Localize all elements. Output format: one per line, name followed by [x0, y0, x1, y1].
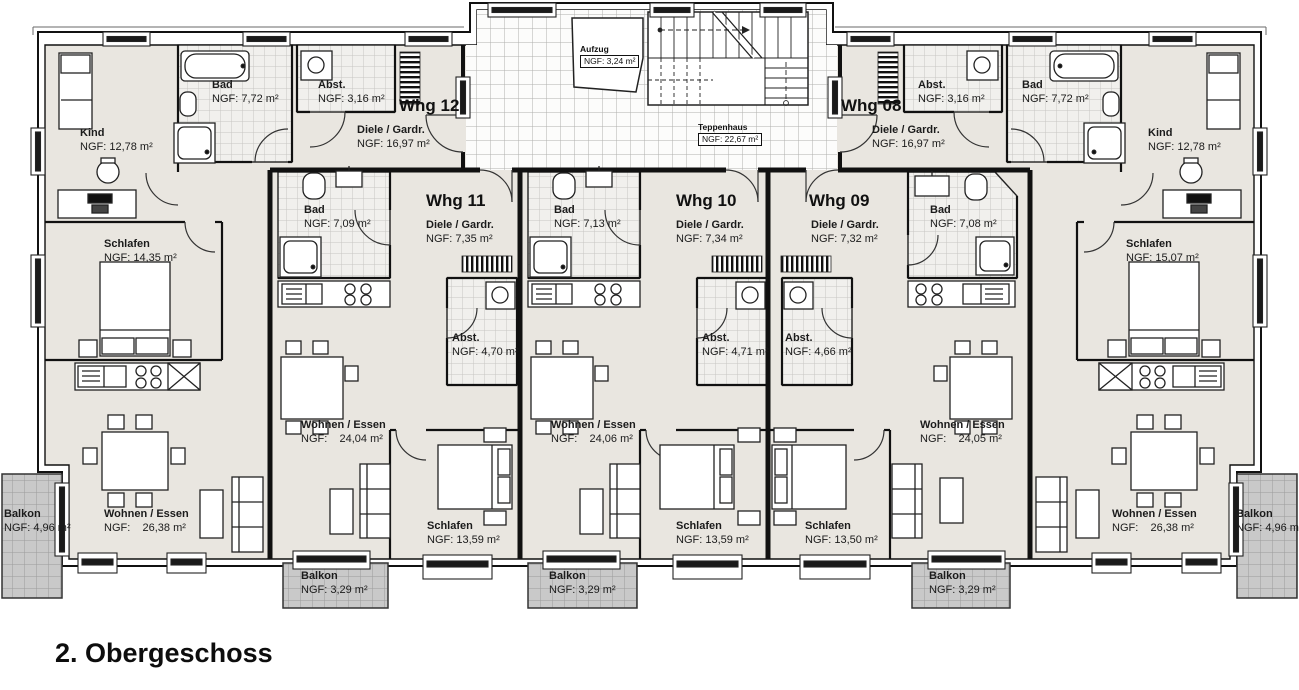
room-label-bad-whg11: BadNGF: 7,09 m² [304, 204, 371, 231]
pot-icon [97, 161, 119, 183]
cistern-icon [586, 171, 612, 187]
room-label-diele-whg12: Diele / Gardr.NGF: 16,97 m² [357, 124, 430, 151]
washing-machine-icon [486, 282, 515, 309]
room-label-balkon-whg08: BalkonNGF: 4,96 m² [1236, 508, 1299, 535]
room-label-balkon-whg10: BalkonNGF: 3,29 m² [549, 570, 616, 597]
room-label-abst-whg08: Abst.NGF: 3,16 m² [918, 79, 985, 106]
nightstand-icon [738, 428, 760, 442]
dining-table-icon [950, 357, 1012, 419]
room-label-bad-whg09: BadNGF: 7,08 m² [930, 204, 997, 231]
washbasin-icon [303, 173, 325, 199]
chair-icon [536, 341, 551, 354]
room-label-diele-whg09: Diele / Gardr.NGF: 7,32 m² [811, 219, 879, 246]
sofa-icon [892, 464, 922, 538]
dining-table-icon [531, 357, 593, 419]
apartment-title-whg09: Whg 09 [809, 191, 869, 211]
nightstand-icon [774, 428, 796, 442]
toilet-icon [1103, 92, 1119, 116]
cistern-icon [915, 176, 949, 196]
coffee-table-icon [200, 490, 223, 538]
room-label-kind-whg12: KindNGF: 12,78 m² [80, 127, 153, 154]
room-label-wohnen-whg10: Wohnen / EssenNGF: 24,06 m² [551, 419, 636, 446]
nightstand-icon [173, 340, 191, 357]
room-label-kind-whg08: KindNGF: 12,78 m² [1148, 127, 1221, 154]
washbasin-icon [965, 174, 987, 200]
nightstand-icon [79, 340, 97, 357]
sofa-icon [1036, 477, 1067, 552]
room-label-schlafen-whg11: SchlafenNGF: 13,59 m² [427, 520, 500, 547]
sofa-icon [610, 464, 640, 538]
dining-table-icon [1131, 432, 1197, 490]
washing-machine-icon [967, 51, 998, 80]
room-label-wohnen-whg08: Wohnen / EssenNGF: 26,38 m² [1112, 508, 1197, 535]
room-label-abst-whg09: Abst.NGF: 4,66 m² [785, 332, 852, 359]
sofa-icon [232, 477, 263, 552]
room-label-abst-whg11: Abst.NGF: 4,70 m² [452, 332, 519, 359]
room-label-schlafen-whg10: SchlafenNGF: 13,59 m² [676, 520, 749, 547]
room-label-wohnen-whg11: Wohnen / EssenNGF: 24,04 m² [301, 419, 386, 446]
room-label-schlafen-whg12: SchlafenNGF: 14,35 m² [104, 238, 177, 265]
room-label-abst-whg10: Abst.NGF: 4,71 m² [702, 332, 769, 359]
chair-icon [108, 415, 124, 429]
room-label-balkon-whg12: BalkonNGF: 4,96 m² [4, 508, 71, 535]
toilet-icon [180, 92, 196, 116]
chair-icon [1137, 415, 1153, 429]
chair-icon [955, 341, 970, 354]
coffee-table-icon [330, 489, 353, 534]
room-label-schlafen-whg09: SchlafenNGF: 13,50 m² [805, 520, 878, 547]
dining-table-icon [281, 357, 343, 419]
stairs-icon [648, 12, 808, 105]
elevator-label: AufzugNGF: 3,24 m² [580, 44, 639, 68]
washing-machine-icon [301, 51, 332, 80]
pot-icon [1180, 161, 1202, 183]
apartment-title-whg10: Whg 10 [676, 191, 736, 211]
room-label-bad-whg08: BadNGF: 7,72 m² [1022, 79, 1089, 106]
apartment-title-whg11: Whg 11 [426, 191, 486, 211]
washing-machine-icon [784, 282, 813, 309]
sofa-icon [360, 464, 390, 538]
coffee-table-icon [1076, 490, 1099, 538]
room-label-wohnen-whg12: Wohnen / EssenNGF: 26,38 m² [104, 508, 189, 535]
washing-machine-icon [736, 282, 765, 309]
coffee-table-icon [940, 478, 963, 523]
dining-table-icon [102, 432, 168, 490]
nightstand-icon [1108, 340, 1126, 357]
apartment-title-whg08: Whg 08 [841, 96, 901, 116]
room-label-wohnen-whg09: Wohnen / EssenNGF: 24,05 m² [920, 419, 1005, 446]
coffee-table-icon [580, 489, 603, 534]
cistern-icon [336, 171, 362, 187]
room-label-bad-whg12: BadNGF: 7,72 m² [212, 79, 279, 106]
nightstand-icon [774, 511, 796, 525]
room-label-abst-whg12: Abst.NGF: 3,16 m² [318, 79, 385, 106]
chair-icon [286, 341, 301, 354]
stairwell-label: TeppenhausNGF: 22,67 m² [698, 122, 762, 146]
room-label-diele-whg11: Diele / Gardr.NGF: 7,35 m² [426, 219, 494, 246]
room-label-balkon-whg11: BalkonNGF: 3,29 m² [301, 570, 368, 597]
room-label-balkon-whg09: BalkonNGF: 3,29 m² [929, 570, 996, 597]
room-label-bad-whg10: BadNGF: 7,13 m² [554, 204, 621, 231]
floor-title: 2. Obergeschoss [55, 638, 273, 669]
room-label-schlafen-whg08: SchlafenNGF: 15,07 m² [1126, 238, 1199, 265]
washbasin-icon [553, 173, 575, 199]
nightstand-icon [1202, 340, 1220, 357]
room-label-diele-whg08: Diele / Gardr.NGF: 16,97 m² [872, 124, 945, 151]
apartment-title-whg12: Whg 12 [399, 96, 459, 116]
nightstand-icon [484, 428, 506, 442]
floorplan-page: Whg 12 Whg 11 Whg 10 Whg 09 Whg 08 KindN… [0, 0, 1299, 690]
room-label-diele-whg10: Diele / Gardr.NGF: 7,34 m² [676, 219, 744, 246]
floorplan-drawing [0, 0, 1299, 690]
